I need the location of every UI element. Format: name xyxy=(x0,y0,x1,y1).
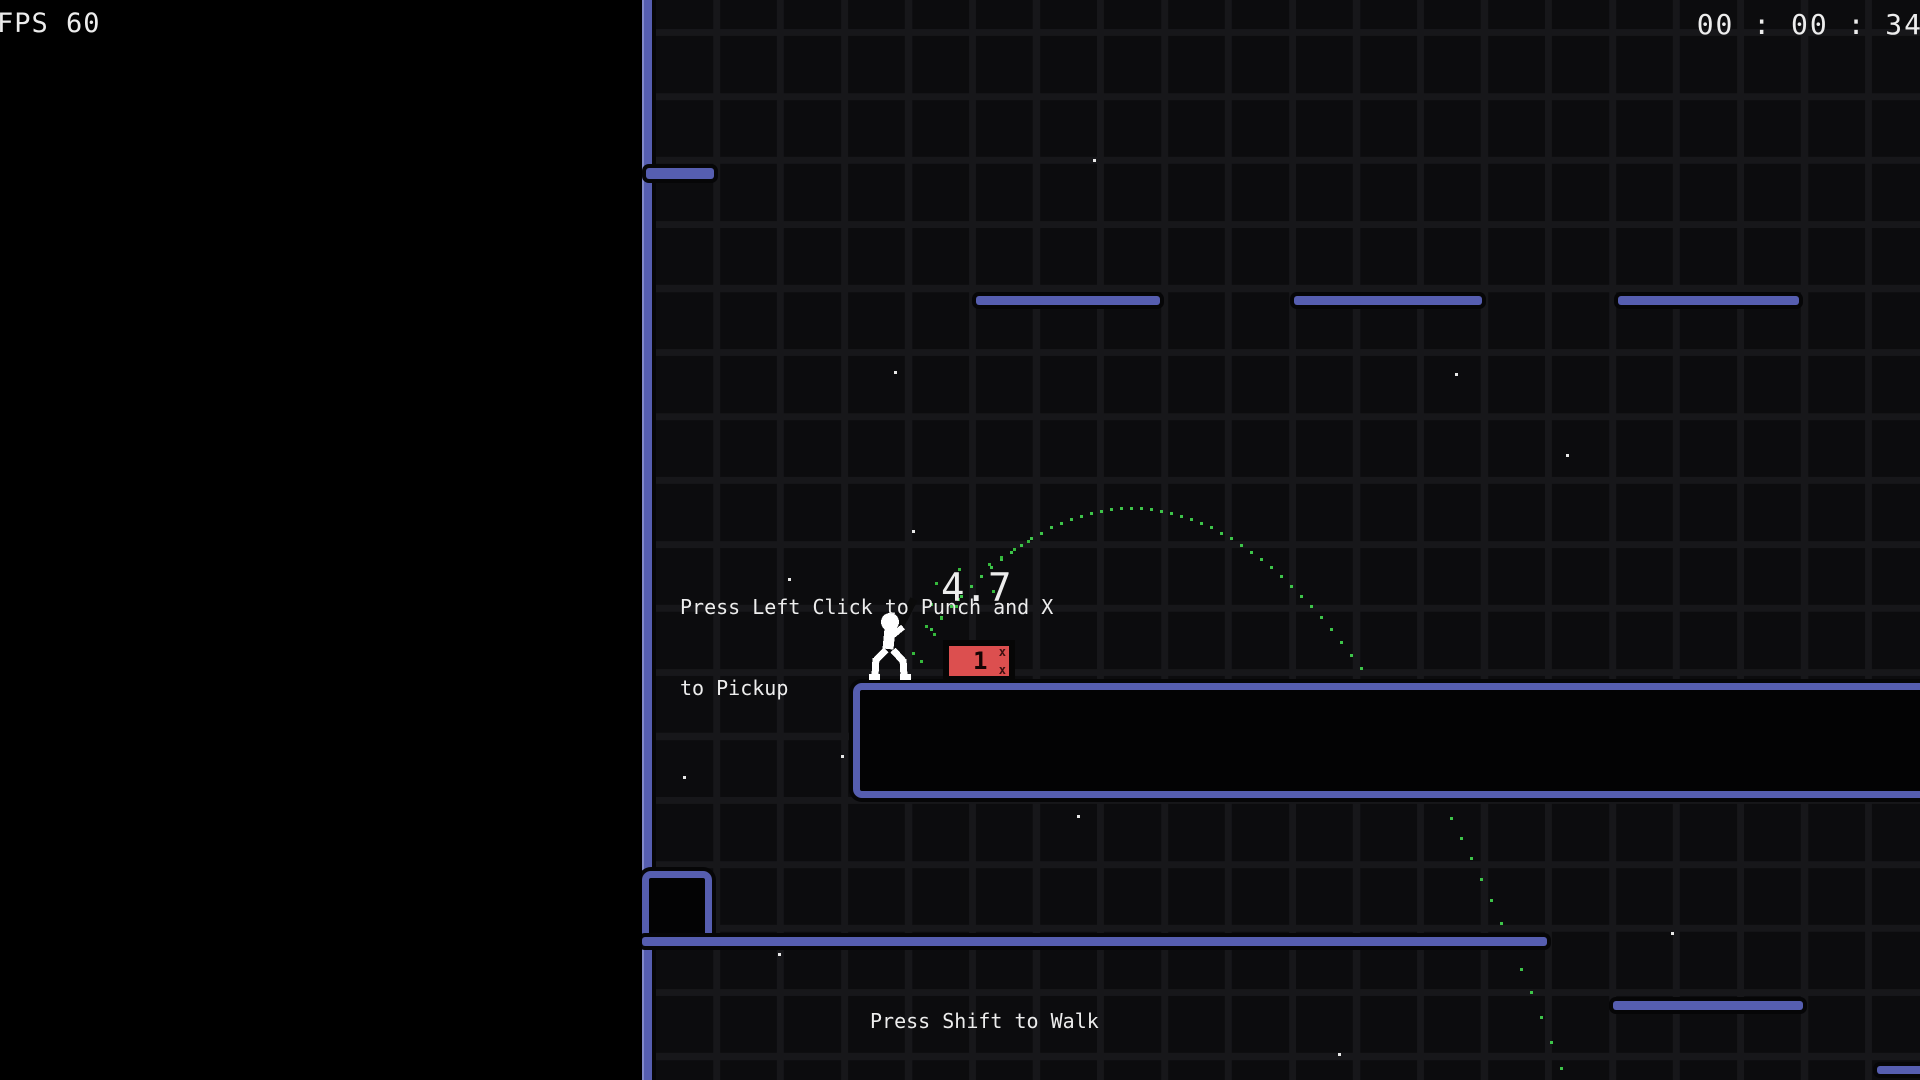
game-timer: 00 : 00 : 34 xyxy=(1697,8,1920,41)
trajectory-dot xyxy=(1480,878,1483,881)
trajectory-dot xyxy=(1220,532,1223,535)
trajectory-dot xyxy=(1330,628,1333,631)
out-of-bounds-area xyxy=(0,0,642,1080)
star-particle xyxy=(1455,373,1458,376)
trajectory-dot xyxy=(1290,585,1293,588)
trajectory-dot xyxy=(1250,551,1253,554)
trajectory-dot xyxy=(1210,526,1213,529)
trajectory-dot xyxy=(1490,899,1493,902)
trajectory-dot xyxy=(1190,518,1193,521)
star-particle xyxy=(1671,932,1674,935)
walk-tutorial-text: Press Shift to Walk xyxy=(870,1009,1099,1033)
trajectory-dot xyxy=(1270,566,1273,569)
trajectory-dot xyxy=(1350,654,1353,657)
float-platform-1 xyxy=(976,296,1160,305)
fps-counter: FPS 60 xyxy=(0,8,101,39)
trajectory-dot xyxy=(1310,605,1313,608)
star-particle xyxy=(1093,159,1096,162)
star-particle xyxy=(683,776,686,779)
trajectory-dot xyxy=(1280,575,1283,578)
float-platform-2 xyxy=(1294,296,1482,305)
trajectory-dot xyxy=(1050,526,1053,529)
trajectory-dot xyxy=(1230,537,1233,540)
trajectory-dot xyxy=(1440,798,1443,801)
small-box xyxy=(642,871,712,943)
trajectory-dot xyxy=(1320,616,1323,619)
trajectory-dot xyxy=(1360,667,1363,670)
trajectory-dot xyxy=(1110,508,1113,511)
trajectory-dot xyxy=(1160,510,1163,513)
trajectory-dot xyxy=(1520,968,1523,971)
trajectory-dot xyxy=(1300,595,1303,598)
trajectory-dot xyxy=(1240,544,1243,547)
trajectory-dot xyxy=(1550,1041,1553,1044)
trajectory-dot xyxy=(1150,508,1153,511)
trajectory-dot xyxy=(1530,991,1533,994)
trajectory-dot xyxy=(1100,510,1103,513)
corner-platform xyxy=(1877,1066,1920,1074)
trajectory-dot xyxy=(1060,522,1063,525)
punch-tutorial-line2: to Pickup xyxy=(680,675,1053,702)
float-platform-3 xyxy=(1618,296,1799,305)
star-particle xyxy=(1077,815,1080,818)
throw-power-value: 4.7 xyxy=(941,566,1011,611)
trajectory-dot xyxy=(1450,817,1453,820)
star-particle xyxy=(1338,1053,1341,1056)
trajectory-dot xyxy=(1540,1016,1543,1019)
star-particle xyxy=(1566,454,1569,457)
star-particle xyxy=(778,953,781,956)
trajectory-dot xyxy=(1170,512,1173,515)
star-particle xyxy=(894,371,897,374)
trajectory-dot xyxy=(1500,922,1503,925)
trajectory-dot xyxy=(1130,507,1133,510)
trajectory-dot xyxy=(1460,837,1463,840)
trajectory-dot xyxy=(1120,507,1123,510)
trajectory-dot xyxy=(1080,515,1083,518)
trajectory-dot xyxy=(1090,512,1093,515)
lower-long-platform xyxy=(642,937,1547,946)
lower-right-platform xyxy=(1613,1001,1803,1010)
trajectory-dot xyxy=(1070,518,1073,521)
trajectory-dot xyxy=(1560,1067,1563,1070)
trajectory-dot xyxy=(1200,522,1203,525)
trajectory-dot xyxy=(1340,641,1343,644)
game-screen[interactable]: 1 x x FPS 60 00 : 00 : 34 Press Left Cli… xyxy=(0,0,1920,1080)
upper-ledge xyxy=(646,168,714,179)
trajectory-dot xyxy=(1260,558,1263,561)
trajectory-dot xyxy=(1180,515,1183,518)
trajectory-dot xyxy=(1040,532,1043,535)
trajectory-dot xyxy=(1140,507,1143,510)
star-particle xyxy=(912,530,915,533)
trajectory-dot xyxy=(1470,857,1473,860)
